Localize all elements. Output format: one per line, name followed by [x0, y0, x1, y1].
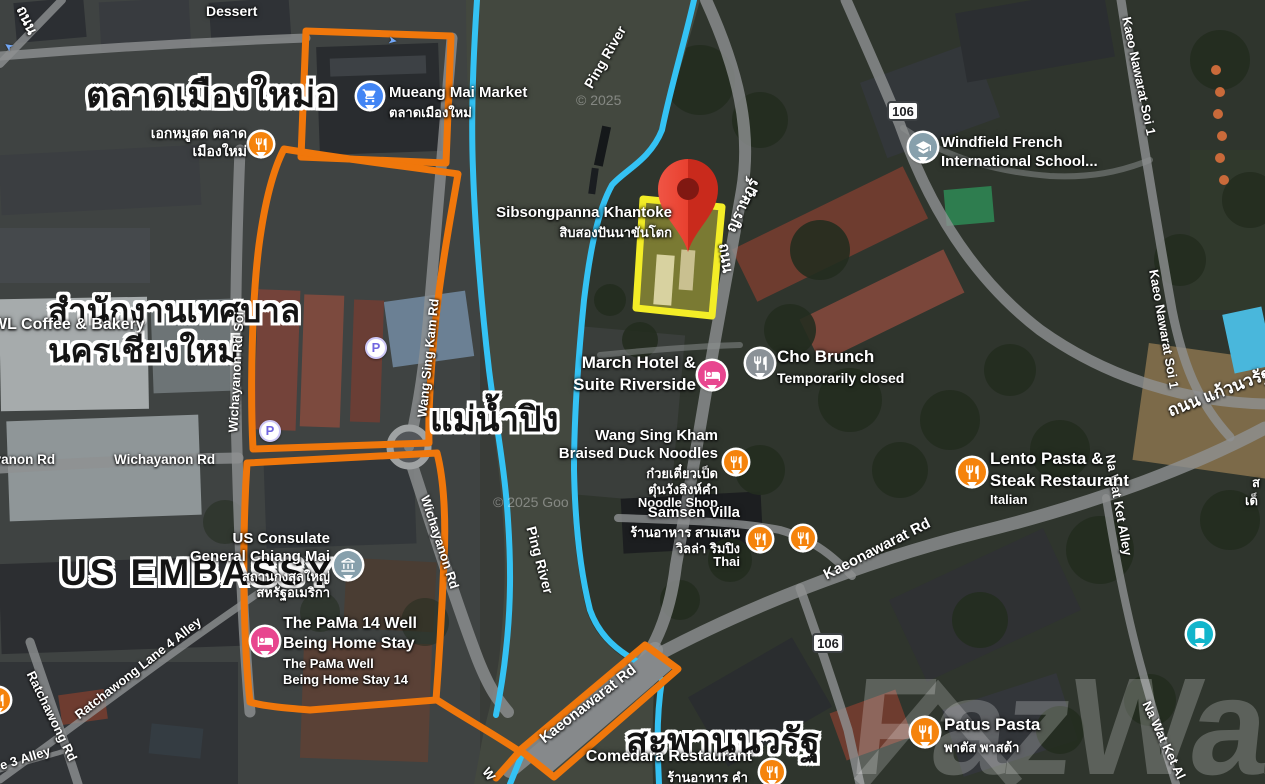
- place-label-cho-brunch[interactable]: Cho Brunch: [777, 347, 874, 367]
- parking-icon[interactable]: P: [259, 420, 281, 442]
- road-label-wichayanon: Wichayanon Rd: [114, 452, 215, 467]
- place-label-comedara[interactable]: Comedara Restaurant: [586, 748, 752, 766]
- hotel-poi-icon[interactable]: [698, 361, 726, 389]
- satellite-map[interactable]: FazWaz © 2025 © 2025 Goo ตลาดเมืองใหม่อ …: [0, 0, 1265, 784]
- place-label-wang-sing-kham-line2[interactable]: Braised Duck Noodles: [559, 445, 718, 462]
- place-label-lento-line1[interactable]: Lento Pasta &: [990, 449, 1103, 469]
- place-label-dessert[interactable]: Dessert: [206, 3, 257, 19]
- restaurant-icon: [753, 532, 767, 546]
- bed-icon: [704, 367, 721, 384]
- route-shield-106: 106: [887, 101, 919, 121]
- road-label-thanon-east: ถนน: [712, 242, 740, 275]
- restaurant-poi-icon[interactable]: [911, 718, 939, 746]
- graduation-cap-icon: [915, 139, 932, 156]
- place-label-patus[interactable]: Patus Pasta: [944, 715, 1040, 735]
- place-label-windfield-line2[interactable]: International School...: [941, 153, 1098, 170]
- market-poi-icon[interactable]: [357, 83, 383, 109]
- annotation-market: ตลาดเมืองใหม่อ: [86, 66, 337, 123]
- place-label-sibsongpanna[interactable]: Sibsongpanna Khantoke: [496, 204, 672, 221]
- place-label-lento-category[interactable]: Italian: [990, 492, 1028, 507]
- restaurant-icon: [917, 724, 934, 741]
- place-label-march-hotel-line1[interactable]: March Hotel &: [582, 353, 696, 373]
- place-label-samsen-villa[interactable]: Samsen Villa: [648, 504, 740, 521]
- bed-icon: [257, 633, 274, 650]
- restaurant-poi-icon[interactable]: [724, 450, 748, 474]
- restaurant-poi-icon[interactable]: [748, 527, 772, 551]
- saved-place-poi-icon[interactable]: [1187, 621, 1213, 647]
- place-label-pama-line2[interactable]: Being Home Stay: [283, 635, 415, 653]
- place-label-cho-brunch-status[interactable]: Temporarily closed: [777, 370, 904, 386]
- restaurant-icon: [796, 531, 810, 545]
- restaurant-icon: [0, 693, 5, 707]
- place-label-us-consulate-thai2[interactable]: สหรัฐอเมริกา: [256, 582, 330, 603]
- place-label-us-consulate-line2[interactable]: General Chiang Mai: [190, 548, 330, 565]
- place-label-lento-line2[interactable]: Steak Restaurant: [990, 471, 1129, 491]
- road-label-wichayanon: Wichayanon Rd: [0, 452, 55, 467]
- place-label-patus-thai[interactable]: พาตัส พาสต้า: [944, 737, 1019, 758]
- place-label-samsen-villa-category[interactable]: Thai: [713, 554, 740, 569]
- annotation-river: แม่น้ำปิง: [430, 392, 559, 447]
- restaurant-icon: [964, 464, 981, 481]
- place-label-mueang-market-thai[interactable]: ตลาดเมืองใหม่: [389, 102, 472, 123]
- place-label-wl-coffee[interactable]: WL Coffee & Bakery: [0, 316, 145, 334]
- place-label-windfield-line1[interactable]: Windfield French: [941, 134, 1063, 151]
- place-label-comedara-thai[interactable]: ร้านอาหาร คำ: [667, 767, 748, 784]
- place-label-ek-mu-sot-line2[interactable]: เมืองใหม่: [192, 141, 247, 163]
- homestay-poi-icon[interactable]: [251, 627, 279, 655]
- school-poi-icon[interactable]: [909, 133, 937, 161]
- fazwaz-watermark: FazWaz: [844, 648, 1265, 784]
- government-building-icon: [340, 557, 357, 574]
- restaurant-icon: [254, 137, 268, 151]
- route-shield-106: 106: [812, 633, 844, 653]
- place-label-us-consulate-line1[interactable]: US Consulate: [232, 530, 330, 547]
- place-label-march-hotel-line2[interactable]: Suite Riverside: [573, 375, 696, 395]
- plot-building: [653, 254, 674, 305]
- restaurant-poi-icon[interactable]: [791, 526, 815, 550]
- copyright-watermark: © 2025: [576, 92, 621, 108]
- consulate-poi-icon[interactable]: [334, 551, 362, 579]
- place-label-pama-sub1[interactable]: The PaMa Well: [283, 656, 374, 671]
- place-label-pama-sub2[interactable]: Being Home Stay 14: [283, 672, 408, 687]
- restaurant-poi-icon[interactable]: [249, 132, 273, 156]
- restaurant-poi-icon[interactable]: [958, 458, 986, 486]
- place-label-mueang-market[interactable]: Mueang Mai Market: [389, 84, 527, 101]
- place-label-wang-sing-kham-line1[interactable]: Wang Sing Kham: [595, 427, 718, 444]
- parking-icon[interactable]: P: [365, 337, 387, 359]
- restaurant-icon: [765, 765, 779, 779]
- plot-building: [679, 250, 696, 291]
- restaurant-icon: [752, 355, 769, 372]
- restaurant-icon: [729, 455, 743, 469]
- copyright-watermark: © 2025 Goo: [493, 494, 569, 510]
- closed-restaurant-poi-icon[interactable]: [746, 349, 774, 377]
- place-label-pama-line1[interactable]: The PaMa 14 Well: [283, 615, 417, 633]
- bookmark-icon: [1192, 626, 1208, 642]
- shopping-cart-icon: [362, 88, 378, 104]
- restaurant-poi-icon[interactable]: [760, 760, 784, 784]
- place-label-edge-fragment: เด็: [1245, 490, 1258, 511]
- place-label-sibsongpanna-thai[interactable]: สิบสองปันนาขันโตก: [559, 222, 672, 243]
